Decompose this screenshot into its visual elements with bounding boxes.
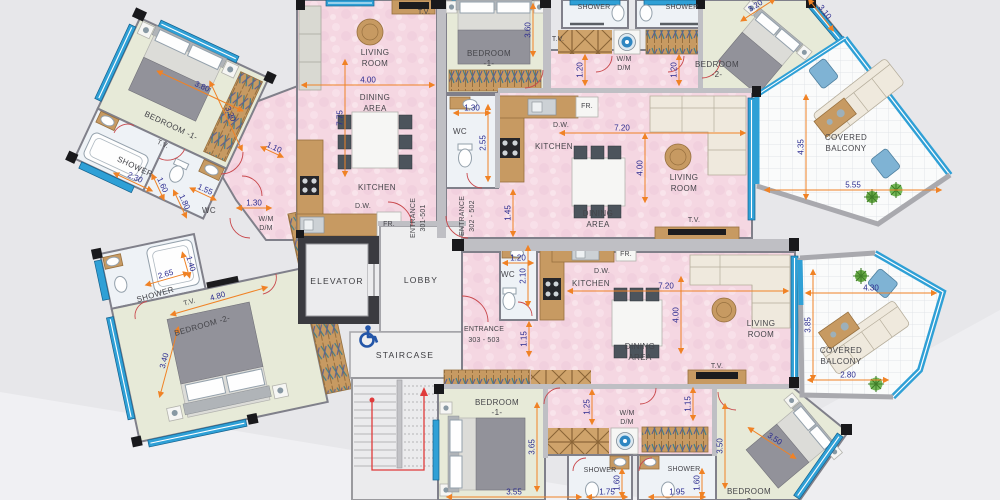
room-label: SHOWER	[668, 466, 701, 473]
toilet	[586, 482, 599, 498]
room-label: COVERED	[825, 133, 867, 142]
svg-text:7.20: 7.20	[614, 124, 630, 133]
room-label: W/M	[620, 410, 635, 417]
room-label: BEDROOM	[467, 49, 511, 58]
room-label: ROOM	[748, 330, 775, 339]
room-label: LIVING	[361, 48, 390, 57]
entrance-label: ENTRANCE	[464, 326, 504, 333]
tv-label: T.V.	[418, 9, 430, 16]
closet	[547, 428, 609, 454]
room-label: SHOWER	[584, 467, 617, 474]
tv-label: T.V.	[688, 217, 700, 224]
svg-text:4.30: 4.30	[863, 284, 879, 293]
room-label: FR.	[620, 251, 632, 258]
toilet	[640, 5, 652, 21]
svg-text:3.65: 3.65	[528, 439, 537, 455]
tv	[696, 372, 738, 379]
room-label: WC	[202, 206, 216, 215]
svg-text:1.25: 1.25	[583, 399, 592, 415]
room-label: LIVING	[670, 173, 699, 182]
room-label: ROOM	[362, 59, 389, 68]
svg-text:1.20: 1.20	[510, 254, 526, 263]
room-label: D.W.	[553, 122, 569, 129]
svg-text:4.00: 4.00	[360, 76, 376, 85]
room-label: D.W.	[594, 268, 610, 275]
pillow	[450, 420, 462, 452]
room-label: KITCHEN	[535, 142, 573, 151]
closet	[558, 30, 612, 54]
svg-text:1.20: 1.20	[576, 62, 585, 78]
svg-text:4.35: 4.35	[797, 139, 806, 155]
room-label: D/M	[617, 65, 630, 72]
svg-text:2.55: 2.55	[479, 135, 488, 151]
room-label: W/M	[259, 216, 274, 223]
sink	[614, 458, 626, 466]
tv-label: T.V.	[711, 363, 723, 370]
room-label: SHOWER	[666, 4, 699, 11]
entrance-label: 301-501	[420, 204, 427, 231]
room-label: D/M	[620, 419, 633, 426]
svg-text:1.20: 1.20	[670, 62, 679, 78]
toilet	[459, 149, 472, 167]
svg-text:1.30: 1.30	[464, 104, 480, 113]
room-label: -1-	[492, 408, 503, 417]
wardrobe	[642, 427, 708, 452]
room-label: WC	[501, 270, 515, 279]
room-label: SHOWER	[578, 4, 611, 11]
room-label: AREA	[586, 220, 610, 229]
svg-text:3.60: 3.60	[524, 22, 533, 38]
room-label: COVERED	[820, 346, 862, 355]
room-label: KITCHEN	[358, 183, 396, 192]
svg-text:5.55: 5.55	[845, 181, 861, 190]
stove	[543, 278, 561, 300]
stair-divider	[397, 380, 402, 468]
room-label: DINING	[625, 342, 655, 351]
room-label: BEDROOM	[695, 60, 739, 69]
svg-text:2.10: 2.10	[519, 268, 528, 284]
tv	[399, 2, 429, 9]
room-label: -2-	[712, 70, 723, 79]
tv	[668, 229, 726, 235]
tv-label: T.V.	[552, 36, 564, 43]
room-label: ROOM	[671, 184, 698, 193]
svg-text:1.30: 1.30	[246, 199, 262, 208]
room-label: KITCHEN	[572, 279, 610, 288]
entrance-label: 303 - 503	[468, 337, 499, 344]
room-label: -1-	[484, 59, 495, 68]
floor-plan-canvas: 3.80 3.20 2.30 1.60 1.80 1.55 1.10 1.30 …	[0, 0, 1000, 500]
svg-text:3.50: 3.50	[716, 438, 725, 454]
room-label: D/M	[259, 225, 272, 232]
coffee-table	[665, 144, 691, 170]
room-label: W/M	[617, 56, 632, 63]
room-label: BEDROOM	[475, 398, 519, 407]
room-label: BALCONY	[820, 357, 861, 366]
room-label: LOBBY	[404, 275, 438, 285]
room-label: DINING	[583, 209, 613, 218]
balcony-window	[800, 260, 801, 305]
toilet	[612, 5, 624, 21]
blanket	[476, 418, 525, 490]
room-label: STAIRCASE	[376, 350, 434, 360]
room-label: DINING	[360, 93, 390, 102]
svg-text:2.80: 2.80	[840, 371, 856, 380]
washing-machine-icon	[619, 34, 636, 51]
stove	[500, 138, 520, 158]
room-label: WC	[453, 127, 467, 136]
pillow	[460, 2, 494, 13]
sofa	[299, 6, 321, 90]
room-label: ELEVATOR	[310, 276, 364, 286]
svg-text:1.95: 1.95	[669, 488, 685, 497]
window	[433, 420, 439, 480]
svg-text:1.15: 1.15	[520, 331, 529, 347]
dining-table	[612, 300, 662, 346]
svg-text:4.00: 4.00	[672, 307, 681, 323]
svg-text:7.75: 7.75	[336, 110, 345, 126]
dining-table	[352, 112, 398, 168]
pillow	[497, 2, 530, 13]
svg-text:3.85: 3.85	[804, 317, 813, 333]
svg-text:1.45: 1.45	[504, 205, 513, 221]
room-label: AREA	[363, 104, 387, 113]
room-label: BALCONY	[825, 144, 866, 153]
svg-text:3.55: 3.55	[506, 488, 522, 497]
stove	[300, 176, 319, 195]
dining-table	[572, 158, 625, 206]
toilet	[503, 293, 515, 310]
svg-text:1.60: 1.60	[693, 475, 702, 491]
coffee-table	[712, 298, 736, 322]
room-label: AREA	[628, 353, 652, 362]
floor-plan: 3.80 3.20 2.30 1.60 1.80 1.55 1.10 1.30 …	[0, 0, 1000, 500]
svg-text:4.00: 4.00	[636, 160, 645, 176]
room-label: FR.	[383, 221, 395, 228]
room-label: LIVING	[747, 319, 776, 328]
room-label: D.W.	[355, 203, 371, 210]
svg-text:7.20: 7.20	[658, 282, 674, 291]
svg-text:1.75: 1.75	[599, 488, 615, 497]
entrance-label: ENTRANCE	[459, 196, 466, 236]
room-label: FR.	[581, 103, 593, 110]
washing-machine-icon	[617, 433, 634, 450]
coffee-table	[357, 19, 383, 45]
entrance-label: 302 - 502	[469, 200, 476, 231]
entrance-label: ENTRANCE	[410, 198, 417, 238]
svg-text:1.15: 1.15	[684, 396, 693, 412]
pillow	[450, 456, 462, 488]
room-label: BEDROOM	[727, 487, 771, 496]
